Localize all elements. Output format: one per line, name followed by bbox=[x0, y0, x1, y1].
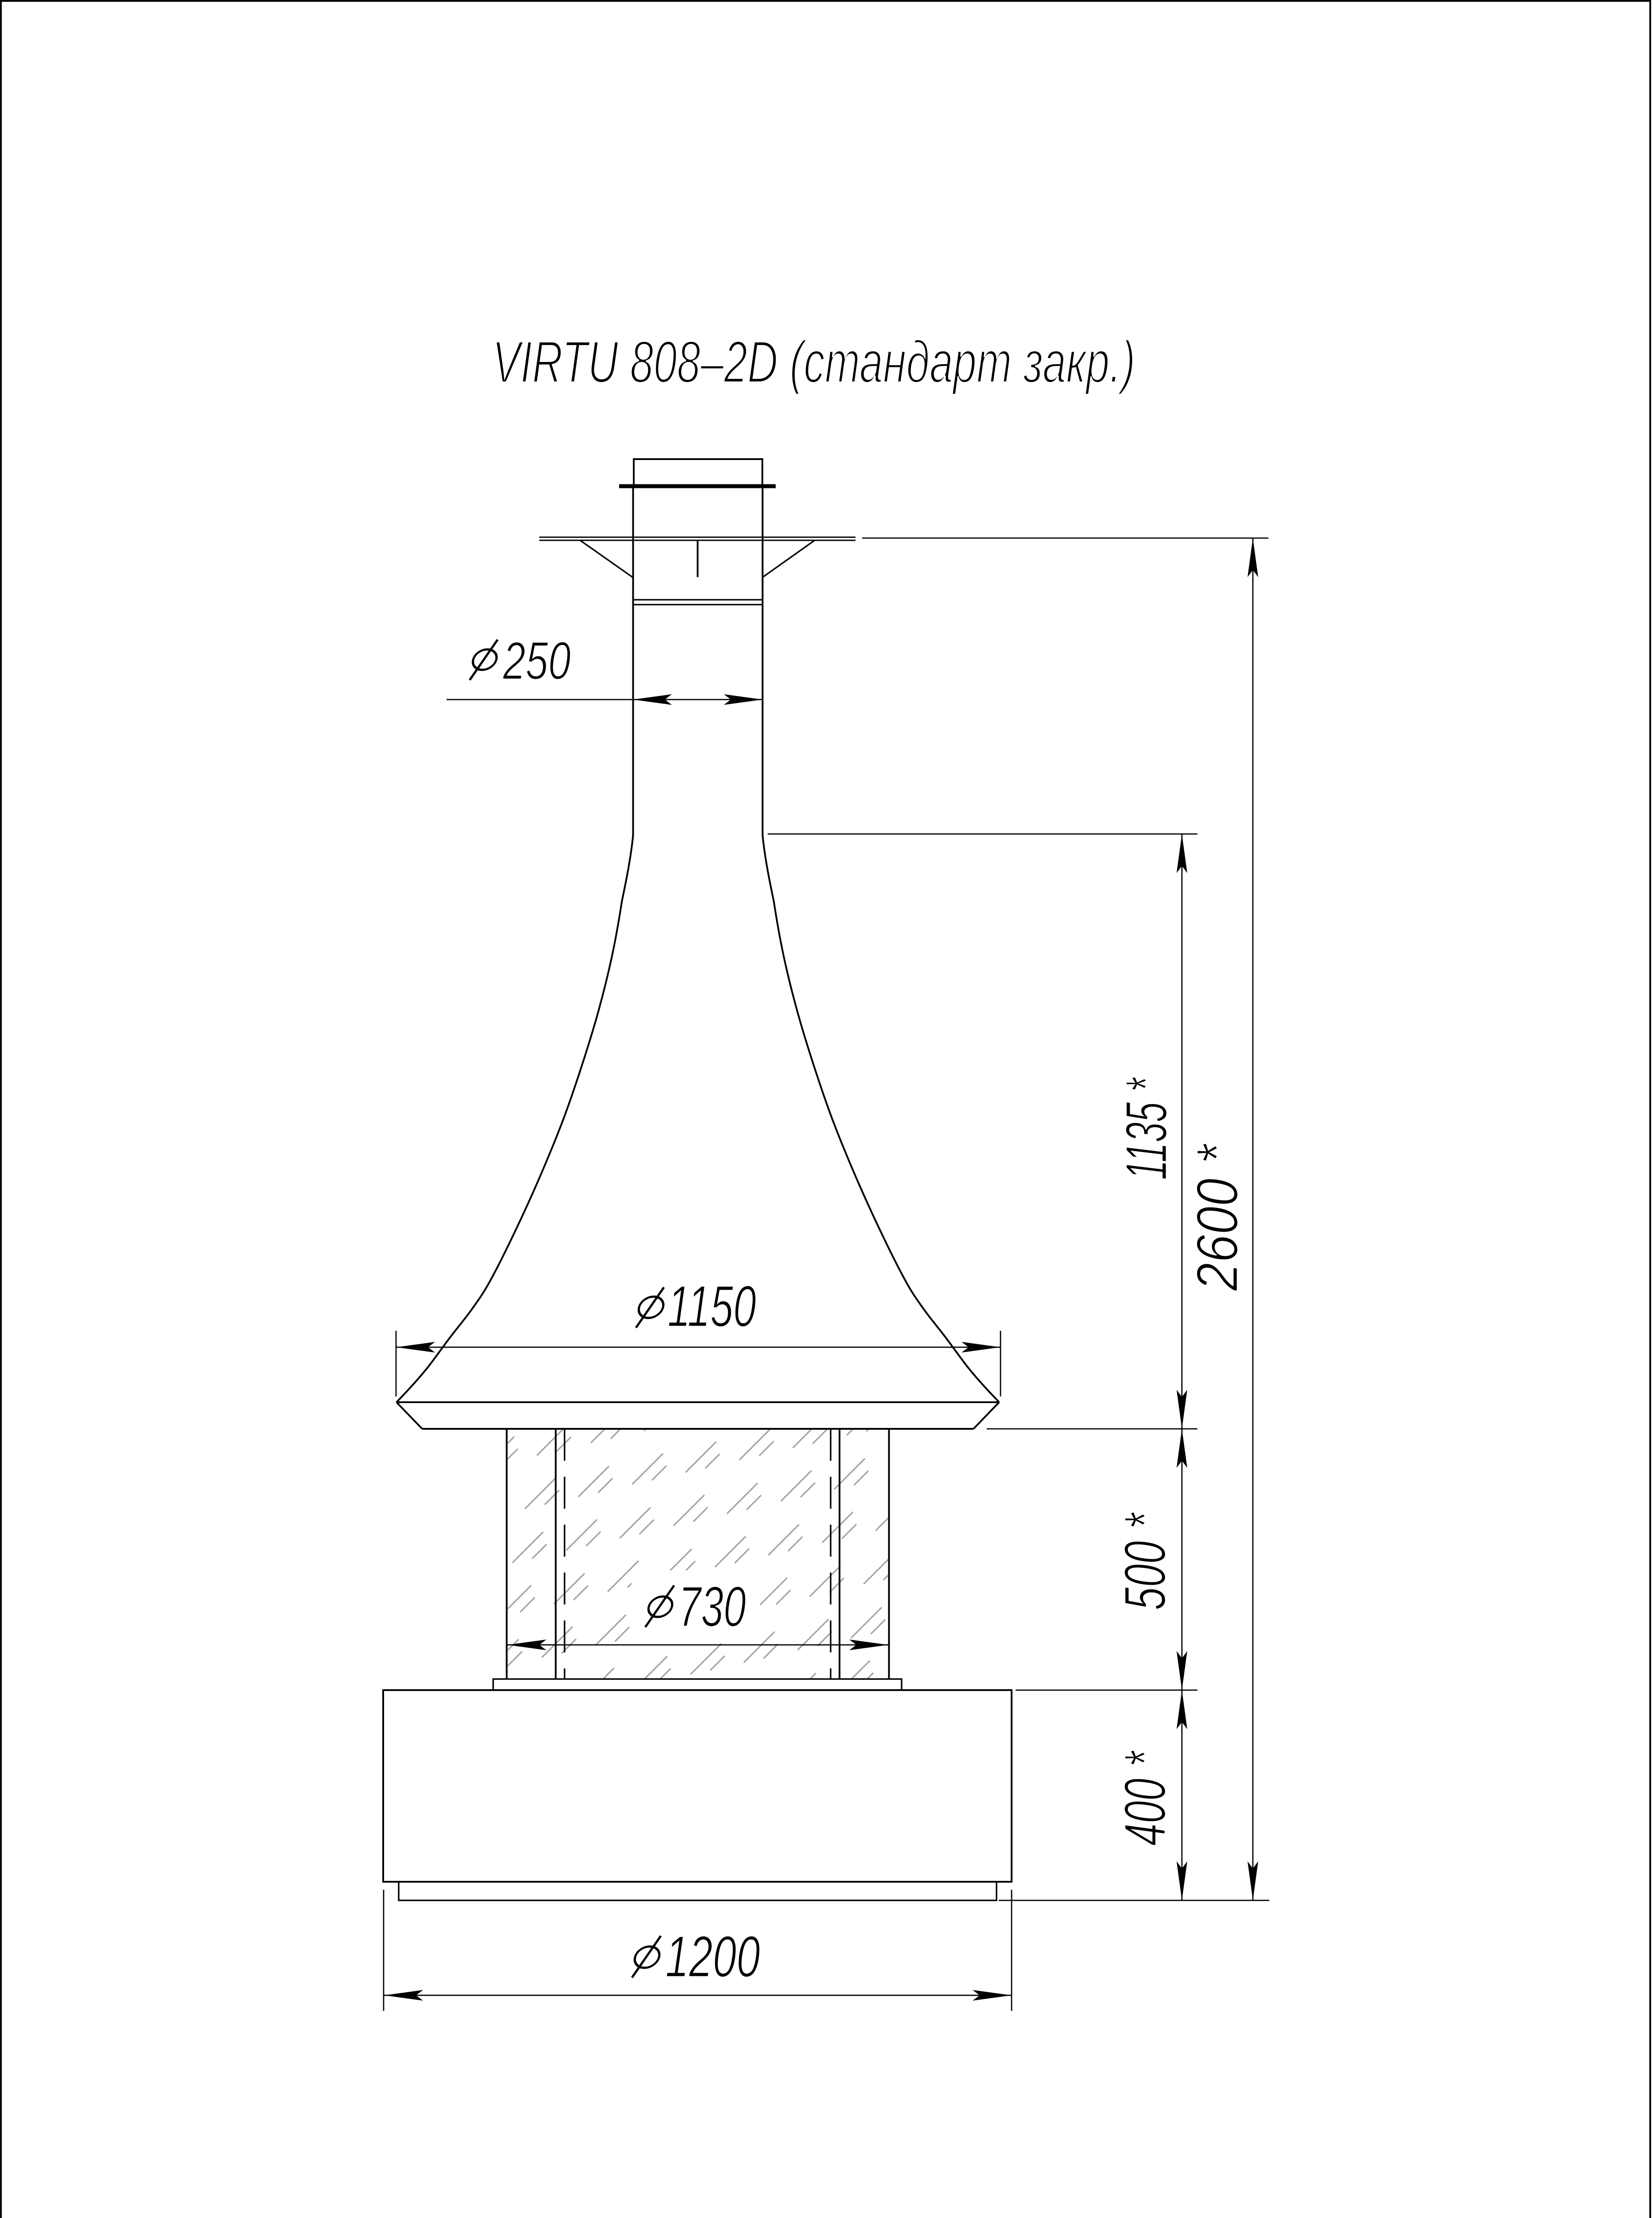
svg-text:1135 *: 1135 * bbox=[1114, 1077, 1179, 1180]
svg-text:250: 250 bbox=[502, 630, 571, 691]
svg-text:500 *: 500 * bbox=[1112, 1512, 1177, 1610]
svg-text:1200: 1200 bbox=[665, 1924, 760, 1989]
svg-text:730: 730 bbox=[679, 1575, 746, 1639]
svg-text:2600 *: 2600 * bbox=[1185, 1143, 1250, 1291]
svg-text:1150: 1150 bbox=[667, 1274, 756, 1339]
svg-text:VIRTU 808–2D (стандарт закр.): VIRTU 808–2D (стандарт закр.) bbox=[492, 329, 1135, 395]
svg-text:400 *: 400 * bbox=[1112, 1750, 1177, 1846]
